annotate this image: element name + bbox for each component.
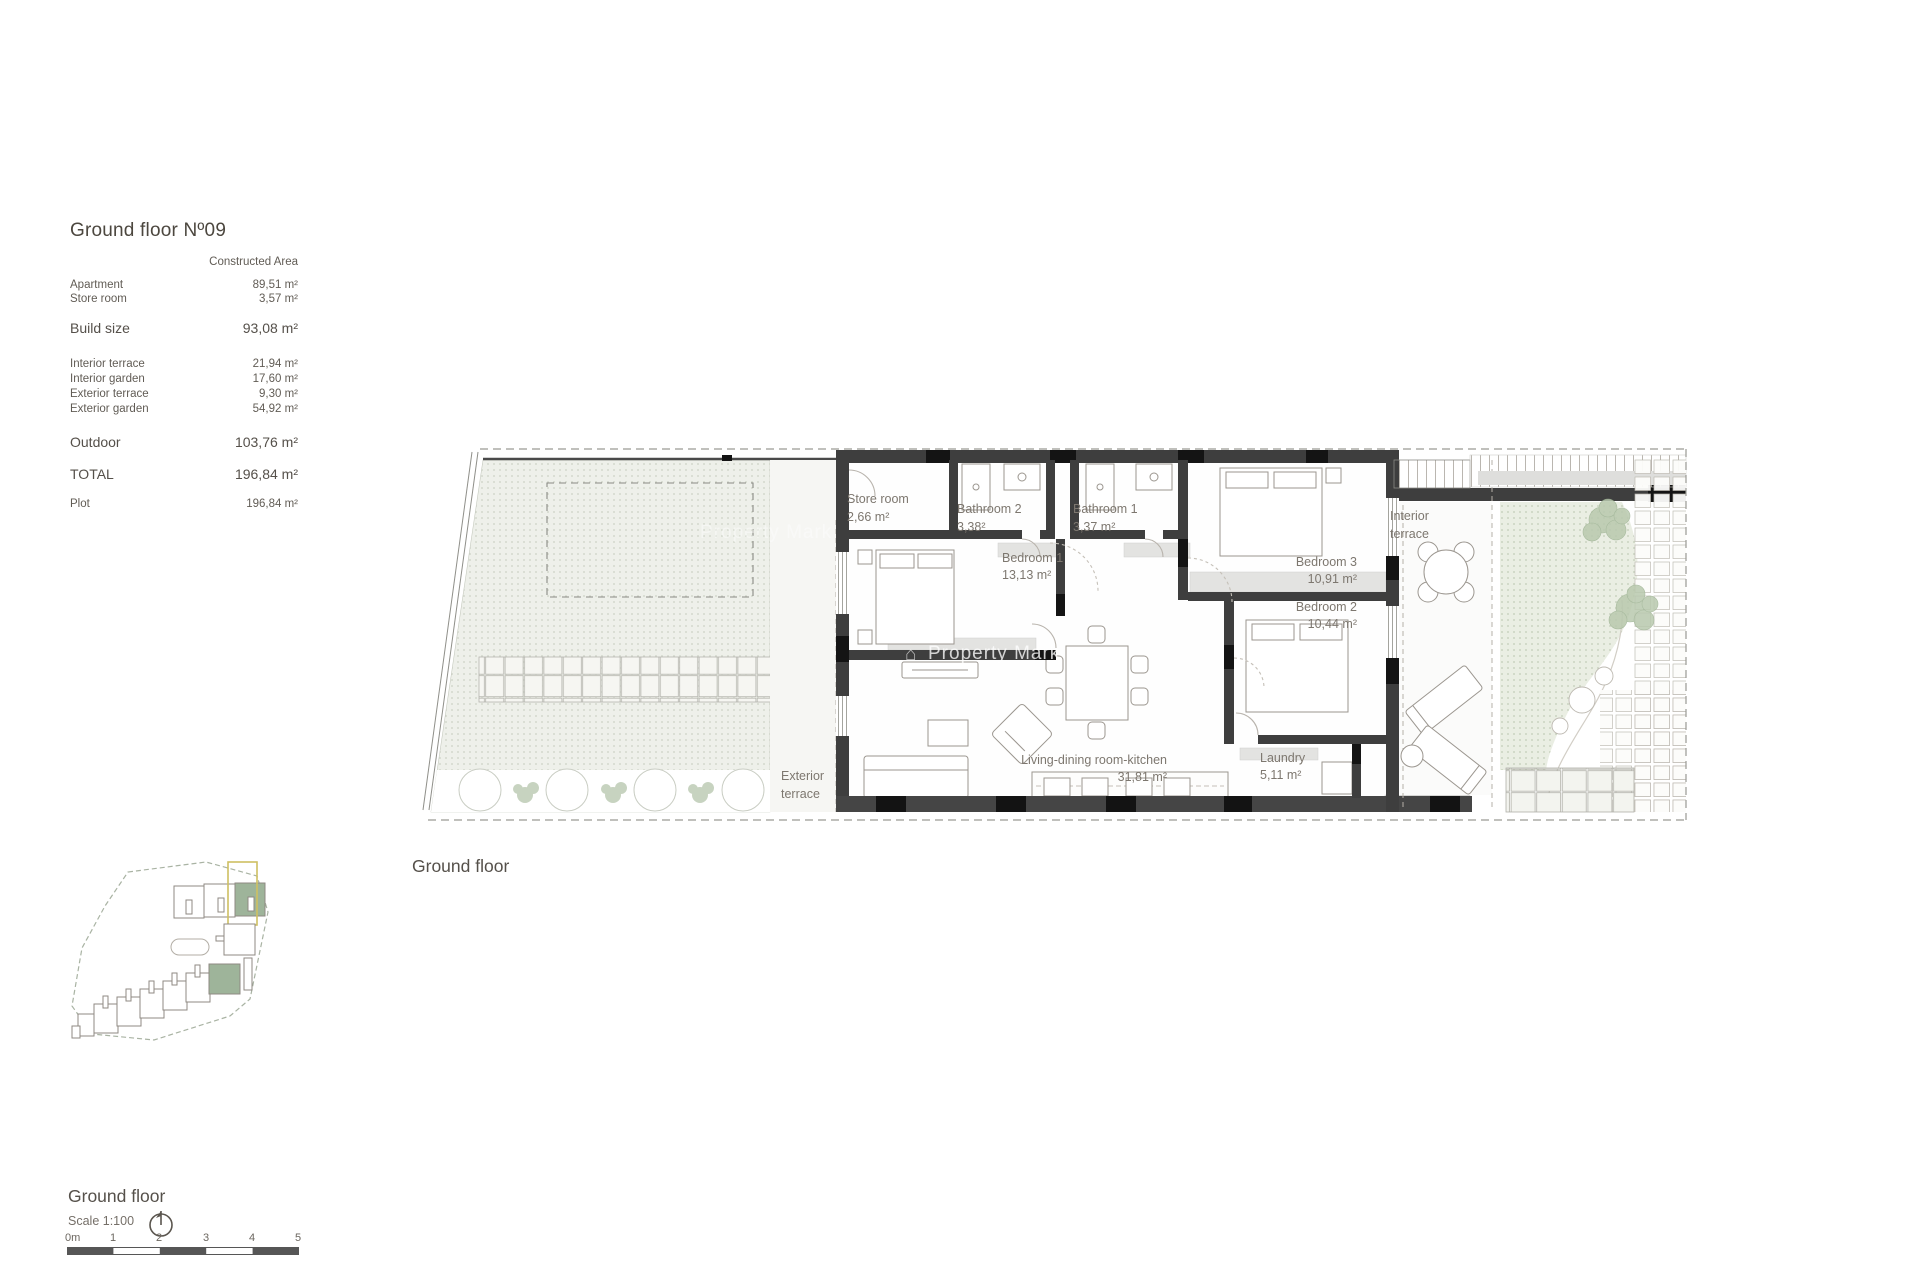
sink-icon: [1004, 464, 1040, 490]
scale-tick: 4: [249, 1232, 255, 1244]
house-icon: ⌂: [905, 644, 917, 665]
coffee-table-icon: [928, 720, 968, 746]
bed-icon: [1246, 620, 1348, 712]
table-row-outdoor: Outdoor103,76 m²: [70, 434, 298, 450]
scale-bar: 0m 1 2 3 4 5: [67, 1232, 299, 1254]
label-bedroom3: Bedroom 3: [1296, 555, 1357, 569]
interior-garden: [1470, 455, 1686, 812]
svg-text:Property Mark: Property Mark: [700, 522, 832, 543]
garden-pergola-grid: [1506, 768, 1634, 812]
sink-icon: [1136, 464, 1172, 490]
sheet-title: Ground floor: [68, 1186, 165, 1207]
table-row: Interior terrace21,94 m²: [70, 358, 298, 370]
svg-text:Property Mark: Property Mark: [928, 643, 1060, 664]
exterior-terrace: [770, 460, 836, 812]
label-laundry: Laundry: [1260, 751, 1306, 765]
label-bathroom1-area: 3,37 m²: [1073, 520, 1115, 534]
plan-caption: Ground floor: [412, 856, 509, 877]
table-row-plot: Plot196,84 m²: [70, 498, 298, 510]
table-row: Apartment89,51 m²: [70, 279, 298, 291]
scale-label: Scale 1:100: [68, 1214, 134, 1228]
label-bathroom1: Bathroom 1: [1073, 502, 1138, 516]
area-table: Ground floor Nº09 Constructed Area Apart…: [70, 220, 298, 520]
scale-tick: 1: [110, 1232, 116, 1244]
table-row: Store room3,57 m²: [70, 293, 298, 305]
label-laundry-area: 5,11 m²: [1260, 768, 1301, 782]
floor-plan: Store room 2,66 m² Bathroom 2 3,38² Bath…: [420, 438, 1690, 840]
table-row: Exterior terrace9,30 m²: [70, 388, 298, 400]
scale-tick: 5: [295, 1232, 301, 1244]
label-interior-terrace2: terrace: [1390, 527, 1429, 541]
label-store-room-area: 2,66 m²: [847, 510, 889, 524]
label-living-area: 31,81 m²: [1118, 770, 1167, 784]
label-bathroom2: Bathroom 2: [957, 502, 1022, 516]
label-bedroom1-area: 13,13 m²: [1002, 568, 1051, 582]
site-units-mid: [216, 924, 255, 955]
garden-pergola-grid: [479, 657, 771, 702]
label-bedroom3-area: 10,91 m²: [1308, 572, 1357, 586]
site-units-upper: [174, 883, 265, 918]
sofa-icon: [864, 756, 968, 798]
table-row: Exterior garden54,92 m²: [70, 403, 298, 415]
label-living: Living-dining room-kitchen: [1021, 753, 1167, 767]
scale-tick: 0m: [65, 1232, 80, 1244]
label-bedroom1: Bedroom 1: [1002, 551, 1063, 565]
label-interior-terrace: Interior: [1390, 509, 1429, 523]
washer-icon: [1322, 762, 1352, 794]
car-icon: [171, 939, 209, 955]
site-plan: [58, 856, 320, 1060]
label-bedroom2: Bedroom 2: [1296, 600, 1357, 614]
site-units-lower: [72, 958, 252, 1038]
label-bathroom2-area: 3,38²: [957, 520, 986, 534]
page-title: Ground floor Nº09: [70, 220, 226, 242]
table-row-build-size: Build size93,08 m²: [70, 320, 298, 336]
label-exterior-terrace2: terrace: [781, 787, 820, 801]
scale-tick: 3: [203, 1232, 209, 1244]
label-bedroom2-area: 10,44 m²: [1308, 617, 1357, 631]
label-exterior-terrace: Exterior: [781, 769, 824, 783]
scale-tick: 2: [156, 1232, 162, 1244]
terrace-table-icon: [1418, 542, 1474, 602]
table-row-total: TOTAL196,84 m²: [70, 466, 298, 482]
column-header: Constructed Area: [70, 256, 298, 268]
table-row: Interior garden17,60 m²: [70, 373, 298, 385]
label-store-room: Store room: [847, 492, 909, 506]
